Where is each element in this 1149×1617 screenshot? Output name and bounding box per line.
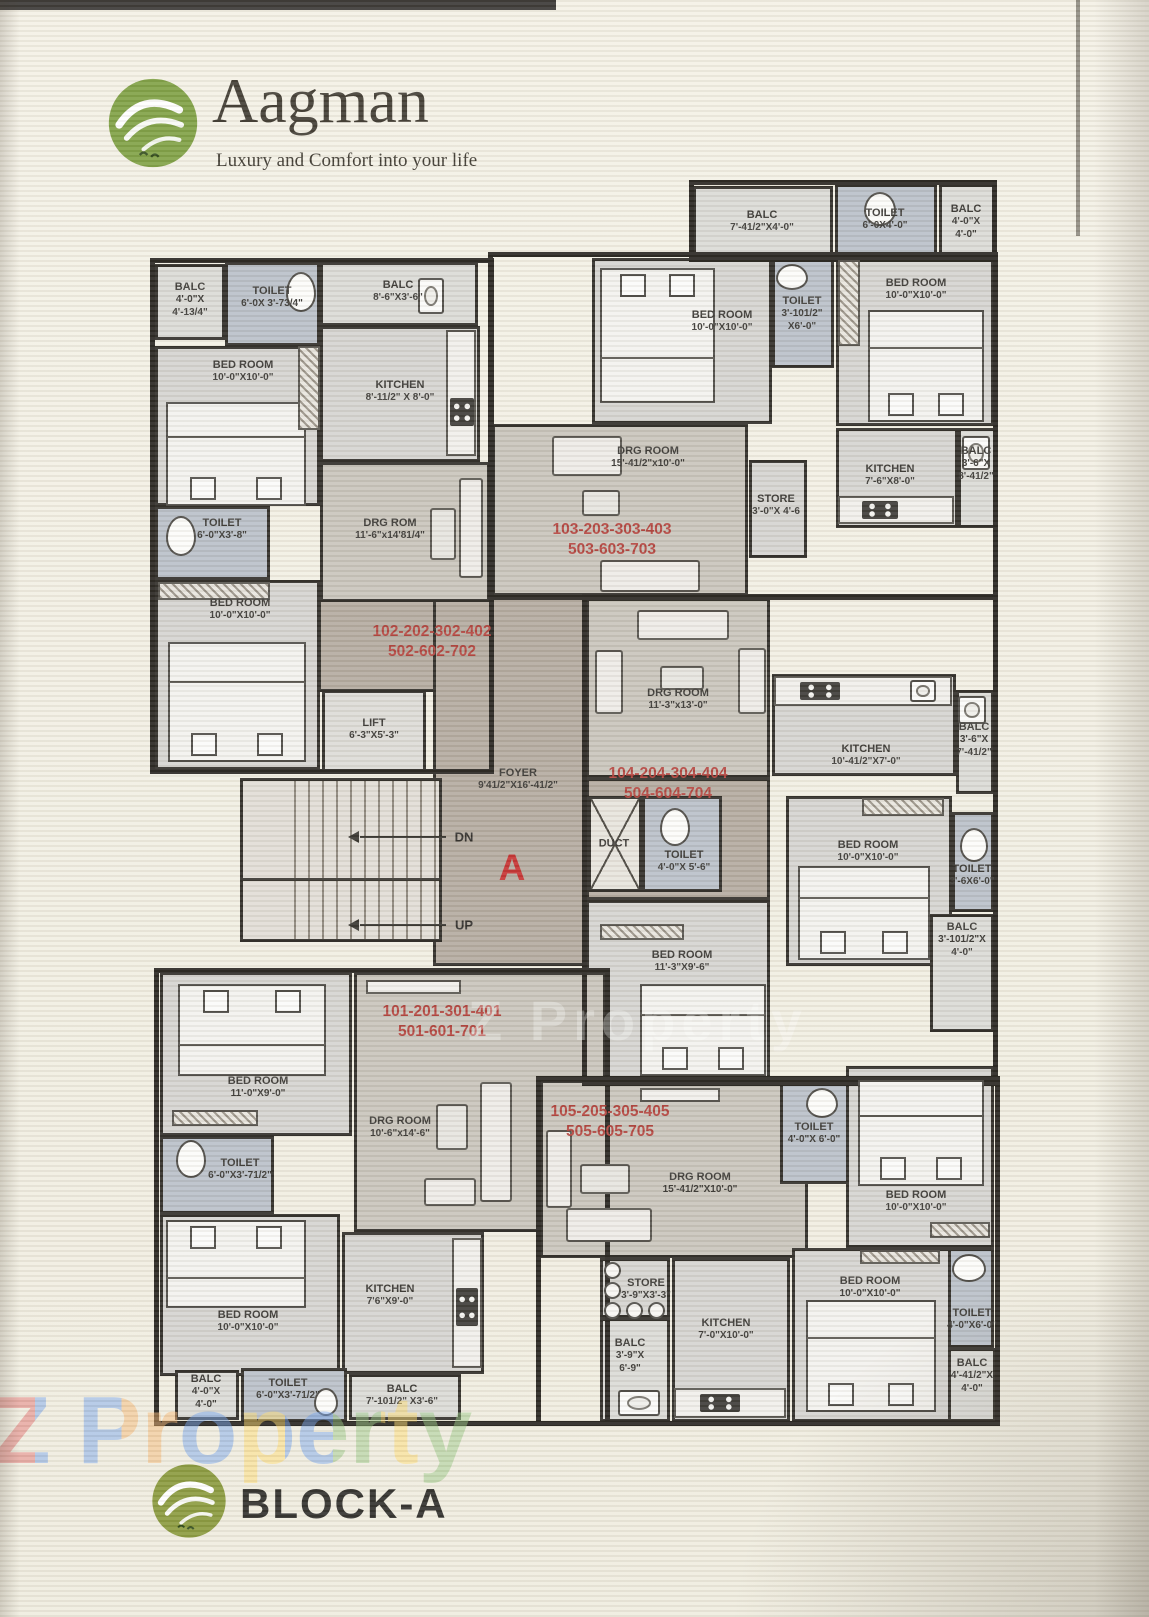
wash-basin-icon [618,1390,660,1416]
room-label-u105-drg: DRG ROOM15'-41/2"X10'-0" [663,1171,738,1197]
room-label-u102-kitchen: KITCHEN8'-11/2" X 8'-0" [345,379,455,405]
room-label-u102-drg: DRG ROM11'-6"x14'81/4" [355,517,425,543]
room-label-u105-balc-1: BALC3'-9"X 6'-9" [605,1337,655,1375]
room-label-u103-bedroom-1: BED ROOM10'-0"X10'-0" [684,309,760,335]
stairs-down-label: DN [455,830,474,845]
toilet-fixture-icon [176,1140,206,1178]
unit-number-103: 103-203-303-403503-603-703 [553,520,672,560]
room-label-u103-store: STORE3'-0"X 4'-6 [749,493,803,519]
bed-icon [600,268,715,403]
room-u104-toilet-1 [952,812,994,912]
floor-plan-page: Aagman Luxury and Comfort into your life [0,0,1149,1617]
stove-icon [800,682,840,700]
room-label-duct: DUCT [599,837,630,850]
pillow-icon [256,1226,282,1249]
room-label-u102-bedroom-2: BED ROOM10'-0"X10'-0" [210,597,271,623]
pillow-icon [888,1383,914,1406]
room-label-u103-balc-2: BALC4'-0"X 4'-0" [941,203,991,241]
store-cylinder-icon [626,1302,643,1319]
room-label-u105-toilet-1: TOILET4'-0"X 6'-0" [786,1121,842,1147]
room-label-u103-bedroom-2: BED ROOM10'-0"X10'-0" [886,277,947,303]
aagman-logo-icon [106,76,200,170]
brand-tagline: Luxury and Comfort into your life [216,150,477,172]
brand-title: Aagman [212,64,429,138]
pillow-icon [882,931,908,954]
wash-basin-icon [958,696,986,724]
room-label-u103-toilet-1: TOILET6'-0X4'-0" [862,207,907,233]
pillow-icon [256,477,282,500]
room-label-u101-drg: DRG ROOM10'-6"x14'-6" [369,1115,431,1141]
room-label-lift: LIFT6'-3"X5'-3" [349,717,399,743]
tv-cabinet-icon [366,980,461,994]
wardrobe-icon [862,798,944,816]
room-label-u105-bedroom-1: BED ROOM10'-0"X10'-0" [886,1189,947,1215]
room-label-u102-balc-2: BALC8'-6"X3'-6" [373,279,423,305]
room-label-u105-bedroom-2: BED ROOM10'-0"X10'-0" [840,1275,901,1301]
bed-icon [168,642,306,762]
stair-treads [294,781,440,939]
store-cylinder-icon [604,1302,621,1319]
store-cylinder-icon [648,1302,665,1319]
sofa-icon [600,560,700,592]
block-title: BLOCK-A [240,1480,448,1528]
bed-icon [806,1300,936,1412]
pillow-icon [257,733,283,756]
toilet-fixture-icon [960,828,988,862]
bed-icon [798,866,930,960]
sofa-icon [595,650,623,714]
sofa-icon [566,1208,652,1242]
room-label-u104-balc-1: BALC3'-6"X 7'-41/2" [952,721,996,759]
pillow-icon [275,990,301,1013]
pillow-icon [620,274,646,297]
pillow-icon [820,931,846,954]
room-label-u101-toilet-1: TOILET6'-0"X3'-71/2" [208,1157,272,1183]
photo-edge-line [1076,0,1080,236]
room-label-u104-bedroom-2: BED ROOM11'-3"X9'-6" [652,949,713,975]
room-label-u102-toilet-1: TOILET6'-0X 3'-73/4" [232,285,312,311]
block-letter: A [499,847,526,889]
room-label-u104-balc-2: BALC3'-101/2"X 4'-0" [933,921,991,959]
sofa-icon [480,1082,512,1202]
bed-icon [178,984,326,1076]
bed-icon [868,310,984,422]
stairs-up-arrow-icon [360,924,446,926]
stove-icon [456,1288,478,1326]
bed-icon [858,1080,984,1186]
table-icon [436,1104,468,1150]
toilet-fixture-icon [660,808,690,846]
toilet-fixture-icon [806,1088,838,1118]
room-label-u105-store: STORE3'-9"X3'-3" [611,1277,681,1303]
room-label-u101-bedroom-2: BED ROOM10'-0"X10'-0" [218,1309,279,1335]
wardrobe-icon [172,1110,258,1126]
pillow-icon [938,393,964,416]
pillow-icon [888,393,914,416]
room-label-u102-bedroom-1: BED ROOM10'-0"X10'-0" [213,359,274,385]
unit-number-104: 104-204-304-404504-604-704 [609,764,728,804]
room-label-u104-bedroom-1: BED ROOM10'-0"X10'-0" [838,839,899,865]
wardrobe-icon [600,924,684,940]
room-label-u102-balc-1: BALC4'-0"X 4'-13/4" [158,281,222,319]
room-label-u101-kitchen: KITCHEN7'6"X9'-0" [350,1283,430,1309]
room-label-u105-kitchen: KITCHEN7'-0"X10'-0" [686,1317,766,1343]
room-label-u105-toilet-2: TOILET4'-0"X6'-0" [945,1307,999,1333]
sofa-icon [459,478,483,578]
toilet-fixture-icon [776,264,808,290]
room-label-u104-kitchen: KITCHEN10'-41/2"X7'-0" [831,743,900,769]
wardrobe-icon [298,346,320,430]
room-label-u101-bedroom-1: BED ROOM11'-0"X9'-0" [228,1075,289,1101]
room-label-u103-toilet-2: TOILET3'-101/2" X6'-0" [772,295,832,333]
block-logo-icon [150,1462,228,1540]
table-icon [582,490,620,516]
pillow-icon [190,1226,216,1249]
pillow-icon [191,733,217,756]
room-label-u105-balc-2: BALC4'-41/2"X 4'-0" [945,1357,999,1395]
room-label-foyer: FOYER9'41/2"X16'-41/2" [448,767,588,793]
room-label-u104-drg: DRG ROOM11'-3"x13'-0" [647,687,709,713]
pillow-icon [203,990,229,1013]
room-label-u104-toilet-1: TOILET3'-6X6'-0" [946,863,998,889]
pillow-icon [828,1383,854,1406]
watermark-bottom: Z Property [0,1376,472,1486]
bed-icon [166,402,306,506]
watermark-ghost: Z Property [468,988,808,1053]
table-icon [580,1164,630,1194]
unit-number-102: 102-202-302-402502-602-702 [373,622,492,662]
room-label-u103-balc-1: BALC7'-41/2"X4'-0" [730,209,794,235]
kitchen-sink-icon [910,680,936,702]
room-label-u103-drg: DRG ROOM15'-41/2"x10'-0" [611,445,685,471]
tv-cabinet-icon [640,1088,720,1102]
table-icon [430,508,456,560]
pillow-icon [669,274,695,297]
toilet-fixture-icon [166,516,196,556]
room-label-u103-balc-3: BALC3'-6"X 8'-41/2" [954,445,998,483]
stove-icon [862,501,898,519]
stairs-down-arrow-icon [360,836,446,838]
wardrobe-icon [838,260,860,346]
sofa-icon [424,1178,476,1206]
wardrobe-icon [860,1250,940,1264]
pillow-icon [880,1157,906,1180]
room-label-core-toilet: TOILET4'-0"X 5'-6" [656,849,712,875]
pillow-icon [936,1157,962,1180]
bed-icon [166,1220,306,1308]
photo-edge-strip [0,0,556,10]
sofa-icon [738,648,766,714]
wardrobe-icon [930,1222,990,1238]
stair-landing-line [243,878,439,881]
unit-number-105: 105-205-305-405505-605-705 [551,1102,670,1142]
pillow-icon [190,477,216,500]
room-label-u102-toilet-2: TOILET6'-0"X3'-8" [197,517,247,543]
toilet-fixture-icon [952,1254,986,1282]
room-label-u103-kitchen: KITCHEN7'-6"X8'-0" [865,463,915,489]
stove-icon [700,1394,740,1412]
stairs-up-label: UP [455,918,473,933]
sofa-icon [637,610,729,640]
